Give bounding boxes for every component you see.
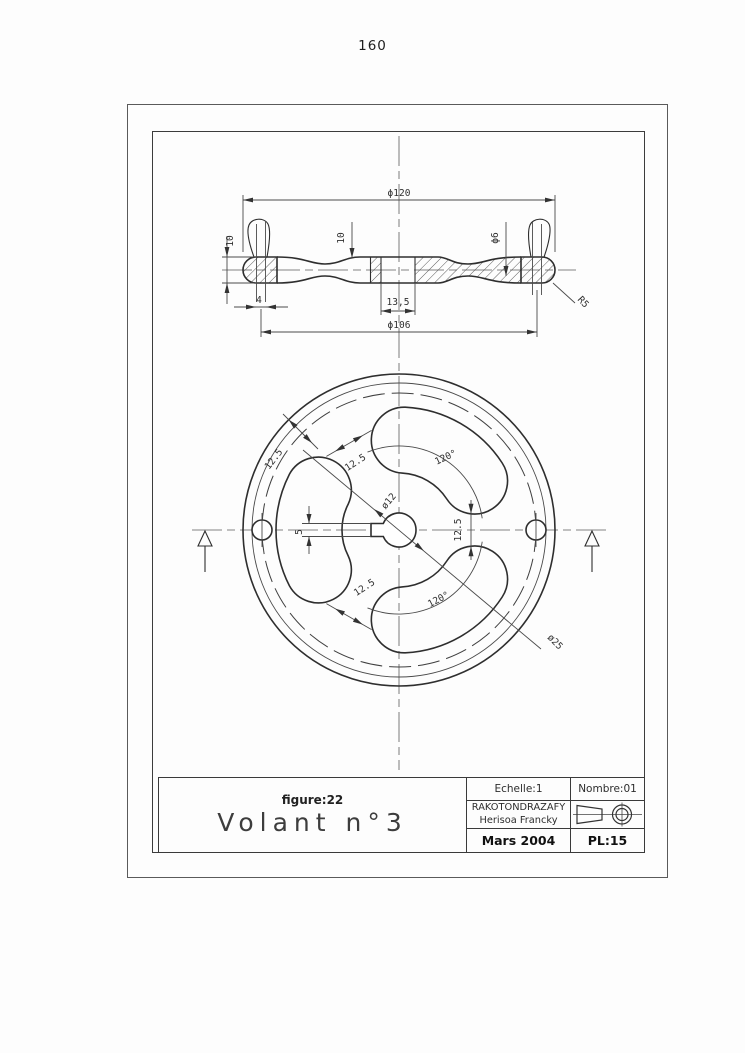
- scale-cell: Echelle:1: [467, 778, 571, 800]
- dim-hub-length-label: 13,5: [387, 297, 410, 308]
- author-line1: RAKOTONDRAZAFY: [472, 802, 565, 815]
- dim-handle-shank: 4: [234, 295, 288, 309]
- dim-spoke-width-upper: 12.5: [326, 430, 371, 473]
- dim-angle-upper-label: 120°: [433, 448, 458, 468]
- dim-angle-lower: 120°: [368, 542, 483, 614]
- title-cell: figure:22 Volant n°3: [159, 778, 467, 852]
- plate-cell: PL:15: [571, 829, 644, 852]
- dim-hub-length: 13,5: [381, 283, 415, 315]
- section-arrow-right: [585, 531, 599, 572]
- dim-web-step: 10: [336, 222, 355, 258]
- dim-keyway-width-label: 5: [294, 529, 305, 535]
- right-rim-hatch: [521, 257, 555, 283]
- section-arrow-left: [198, 531, 212, 572]
- technical-drawing: ϕ120 10 10 ϕ6: [0, 0, 745, 1053]
- dim-spoke-width-upper-label: 12.5: [343, 452, 368, 474]
- drawing-title: Volant n°3: [217, 808, 408, 837]
- dim-web-step-label: 10: [336, 232, 347, 244]
- figure-label: figure:22: [282, 793, 344, 807]
- dim-handle-shank-label: 4: [256, 295, 262, 306]
- dim-outer-diameter-label: ϕ120: [388, 188, 411, 199]
- projection-symbol-cell: [571, 801, 644, 828]
- date-cell: Mars 2004: [467, 829, 571, 852]
- left-handle-knob: [248, 219, 270, 257]
- dim-spoke-width-right-label: 12.5: [453, 519, 464, 542]
- dim-fillet-radius: R5: [553, 283, 591, 310]
- first-angle-projection-icon: [572, 801, 643, 828]
- quantity-cell: Nombre:01: [571, 778, 644, 800]
- section-view: ϕ120 10 10 ϕ6: [222, 188, 591, 337]
- dim-hub-boss-label: ø25: [545, 632, 565, 652]
- dim-angle-lower-label: 120°: [426, 590, 451, 610]
- author-cell: RAKOTONDRAZAFY Herisoa Francky: [467, 801, 571, 828]
- dim-hub-bore-label: ø12: [379, 491, 398, 511]
- dim-hole-diameter-label: ϕ6: [490, 232, 501, 244]
- dim-rim-width: 12.5: [263, 414, 318, 472]
- hub-bore-keyway: [371, 513, 416, 547]
- right-handle-knob: [528, 219, 550, 257]
- scanned-drawing-page: 160: [0, 0, 745, 1053]
- left-rim-hatch: [243, 257, 277, 283]
- dim-spoke-width-lower: 12.5: [326, 577, 377, 630]
- title-block: figure:22 Volant n°3 Echelle:1 Nombre:01…: [158, 777, 645, 853]
- hub-hatch-left: [371, 257, 382, 283]
- dim-spoke-width-lower-label: 12.5: [352, 577, 377, 599]
- dim-handle-circle-diameter-label: ϕ106: [388, 320, 411, 331]
- dim-rim-thickness-label: 10: [225, 235, 236, 247]
- dim-fillet-radius-label: R5: [575, 294, 591, 310]
- author-line2: Herisoa Francky: [472, 815, 565, 828]
